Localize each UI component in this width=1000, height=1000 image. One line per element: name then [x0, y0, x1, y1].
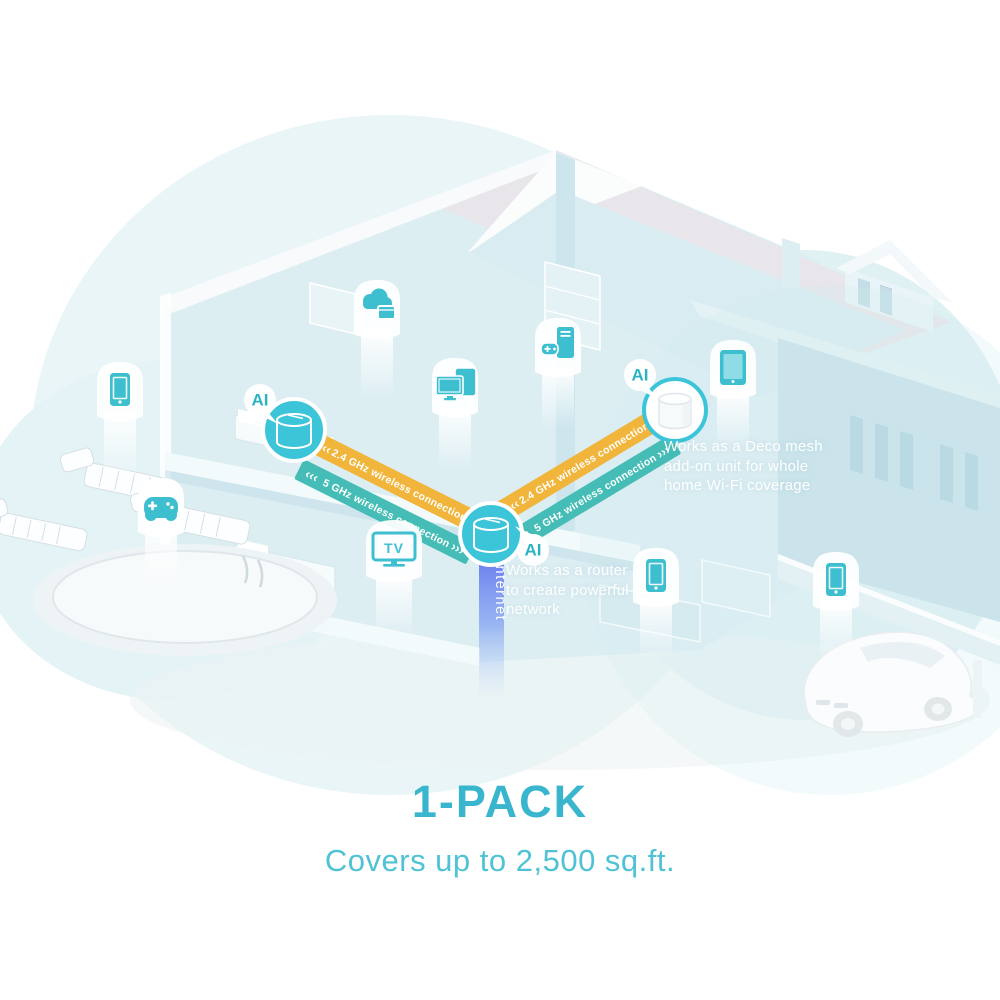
game-controller-icon: [144, 497, 178, 521]
tv-label: TV: [384, 540, 404, 556]
ai-label: AI: [525, 541, 542, 560]
tablet-icon: [720, 350, 746, 385]
deco-unit-router: [460, 503, 522, 565]
ai-label: AI: [632, 366, 649, 385]
router-role-note: Works as a router to create powerful net…: [506, 561, 666, 620]
product-illustration: Internet ‹‹‹ 2.4 GHz wireless connection…: [0, 0, 1000, 1000]
mesh-role-note: Works as a Deco mesh add-on unit for who…: [664, 437, 864, 496]
smartphone-icon: [826, 563, 846, 596]
coverage-caption: Covers up to 2,500 sq.ft.: [0, 843, 1000, 879]
ai-label: AI: [252, 391, 269, 410]
smartphone-icon: [110, 373, 130, 406]
pack-caption: 1-PACK: [0, 776, 1000, 828]
deco-unit-mesh-addon: [644, 379, 706, 441]
